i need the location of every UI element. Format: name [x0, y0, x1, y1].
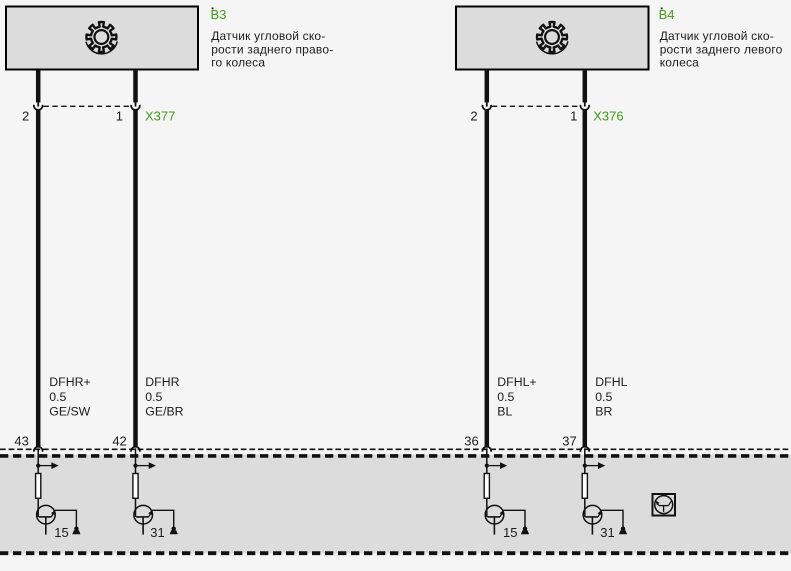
svg-text:X376: X376	[593, 108, 623, 123]
svg-text:DFHL: DFHL	[595, 375, 627, 389]
svg-text:рости заднего право-: рости заднего право-	[211, 42, 333, 56]
svg-text:колеса: колеса	[660, 55, 699, 69]
svg-text:0.5: 0.5	[595, 390, 612, 404]
svg-text:2: 2	[470, 108, 477, 123]
svg-text:BL: BL	[497, 405, 512, 419]
svg-text:Датчик угловой ско-: Датчик угловой ско-	[660, 29, 774, 43]
svg-text:0.5: 0.5	[49, 390, 66, 404]
svg-text:го колеса: го колеса	[211, 55, 265, 69]
svg-text:1: 1	[570, 108, 577, 123]
svg-text:31: 31	[600, 525, 614, 540]
svg-text:DFHR: DFHR	[145, 375, 179, 389]
svg-text:15: 15	[54, 525, 68, 540]
svg-text:Датчик угловой ско-: Датчик угловой ско-	[211, 29, 325, 43]
svg-text:X377: X377	[145, 108, 175, 123]
svg-text:15: 15	[503, 525, 517, 540]
svg-text:0.5: 0.5	[497, 390, 514, 404]
svg-text:2: 2	[22, 108, 29, 123]
svg-text:31: 31	[150, 525, 164, 540]
svg-text:DFHR+: DFHR+	[49, 375, 90, 389]
svg-text:42: 42	[112, 434, 126, 449]
svg-text:BR: BR	[595, 405, 612, 419]
svg-text:1: 1	[116, 108, 123, 123]
svg-text:43: 43	[14, 434, 28, 449]
svg-text:GE/SW: GE/SW	[49, 405, 90, 419]
svg-text:DFHL+: DFHL+	[497, 375, 536, 389]
svg-text:37: 37	[562, 434, 576, 449]
svg-text:36: 36	[464, 434, 478, 449]
svg-text:0.5: 0.5	[145, 390, 162, 404]
svg-text:GE/BR: GE/BR	[145, 405, 183, 419]
svg-text:рости заднего левого: рости заднего левого	[660, 42, 783, 56]
